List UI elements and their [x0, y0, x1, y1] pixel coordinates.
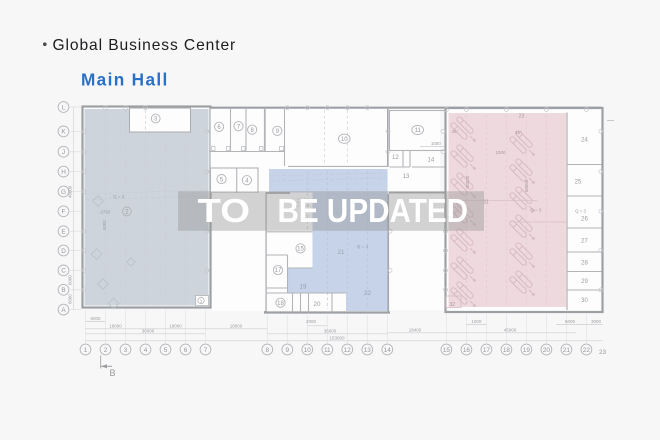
svg-text:Q = 3: Q = 3 — [530, 208, 542, 213]
svg-text:4: 4 — [144, 347, 148, 354]
svg-text:1000: 1000 — [471, 319, 482, 324]
svg-text:32: 32 — [449, 302, 455, 308]
svg-text:1000: 1000 — [495, 150, 506, 155]
svg-text:18000: 18000 — [230, 323, 243, 328]
svg-text:2: 2 — [104, 347, 108, 354]
svg-text:45°: 45° — [452, 129, 459, 134]
svg-text:Q = 3: Q = 3 — [113, 194, 125, 199]
svg-text:21: 21 — [338, 249, 345, 256]
svg-text:31: 31 — [483, 200, 489, 206]
svg-text:15: 15 — [297, 247, 304, 253]
svg-text:18: 18 — [277, 301, 284, 307]
svg-text:17: 17 — [275, 268, 282, 274]
svg-text:5: 5 — [164, 347, 168, 354]
svg-text:6000: 6000 — [102, 220, 107, 230]
svg-text:Q = 3: Q = 3 — [575, 209, 586, 214]
svg-text:8: 8 — [266, 347, 270, 354]
svg-text:Global Business Center: Global Business Center — [53, 37, 237, 54]
svg-text:19: 19 — [300, 283, 307, 290]
svg-text:9: 9 — [286, 347, 290, 354]
svg-text:11: 11 — [324, 347, 331, 354]
svg-text:6000: 6000 — [90, 316, 101, 321]
svg-text:36000: 36000 — [142, 328, 155, 333]
svg-text:10: 10 — [341, 137, 348, 143]
svg-text:24: 24 — [581, 138, 588, 144]
svg-text:21: 21 — [563, 347, 571, 354]
svg-text:7: 7 — [204, 347, 208, 354]
svg-text:A: A — [61, 307, 66, 314]
svg-text:2000: 2000 — [306, 319, 317, 324]
svg-text:20: 20 — [314, 301, 321, 308]
svg-text:22: 22 — [583, 347, 591, 354]
svg-text:153000: 153000 — [329, 335, 345, 340]
svg-text:60000: 60000 — [524, 179, 529, 192]
svg-text:36000: 36000 — [324, 328, 337, 333]
svg-text:19: 19 — [523, 347, 531, 354]
svg-text:1: 1 — [200, 299, 203, 304]
svg-text:30: 30 — [581, 298, 588, 304]
svg-text:L: L — [62, 104, 66, 111]
svg-text:G: G — [61, 189, 66, 196]
svg-text:18400: 18400 — [409, 327, 422, 332]
svg-text:23: 23 — [519, 114, 525, 120]
svg-text:25: 25 — [575, 180, 582, 186]
svg-text:13: 13 — [364, 347, 372, 354]
svg-text:6000: 6000 — [565, 319, 576, 324]
svg-text:15: 15 — [443, 347, 451, 354]
svg-text:13: 13 — [403, 174, 410, 180]
svg-text:46000: 46000 — [68, 185, 73, 198]
svg-text:45000: 45000 — [504, 327, 517, 332]
svg-text:11: 11 — [415, 128, 422, 134]
svg-text:14: 14 — [428, 158, 435, 164]
svg-text:6000: 6000 — [68, 275, 73, 285]
svg-text:-2793: -2793 — [99, 210, 111, 215]
svg-text:12: 12 — [344, 347, 352, 354]
svg-text:1000: 1000 — [431, 141, 441, 146]
svg-text:Main Hall: Main Hall — [81, 70, 169, 90]
svg-text:3000: 3000 — [591, 319, 602, 324]
svg-text:17: 17 — [483, 347, 491, 354]
svg-text:B: B — [110, 368, 116, 378]
svg-text:C: C — [61, 268, 66, 275]
svg-text:J: J — [62, 149, 65, 156]
svg-text:28: 28 — [581, 261, 588, 267]
svg-text:B: B — [61, 287, 65, 294]
svg-text:TO: TO — [198, 193, 251, 230]
svg-text:22: 22 — [364, 290, 371, 297]
svg-text:16: 16 — [463, 347, 471, 354]
svg-text:27: 27 — [581, 239, 588, 245]
svg-text:K: K — [61, 129, 66, 136]
svg-text:23: 23 — [599, 349, 607, 356]
svg-text:F: F — [62, 209, 66, 216]
svg-text:12: 12 — [392, 155, 399, 161]
svg-text:6: 6 — [184, 347, 188, 354]
svg-text:3: 3 — [124, 347, 128, 354]
svg-text:1: 1 — [84, 347, 88, 354]
svg-text:E: E — [61, 229, 65, 236]
svg-text:45°: 45° — [515, 130, 522, 135]
svg-text:6000: 6000 — [68, 294, 73, 304]
svg-text:18000: 18000 — [169, 323, 182, 328]
svg-text:26: 26 — [581, 217, 588, 223]
svg-text:H: H — [61, 169, 66, 176]
svg-text:20: 20 — [543, 347, 551, 354]
svg-text:Q = 3: Q = 3 — [357, 244, 369, 249]
svg-text:18: 18 — [503, 347, 511, 354]
svg-text:14: 14 — [384, 347, 392, 354]
svg-text:D: D — [61, 248, 66, 255]
svg-text:10: 10 — [304, 347, 312, 354]
svg-text:29: 29 — [581, 279, 588, 285]
svg-text:BE UPDATED: BE UPDATED — [278, 193, 469, 230]
svg-text:18000: 18000 — [109, 323, 122, 328]
svg-text:60000: 60000 — [465, 175, 470, 188]
